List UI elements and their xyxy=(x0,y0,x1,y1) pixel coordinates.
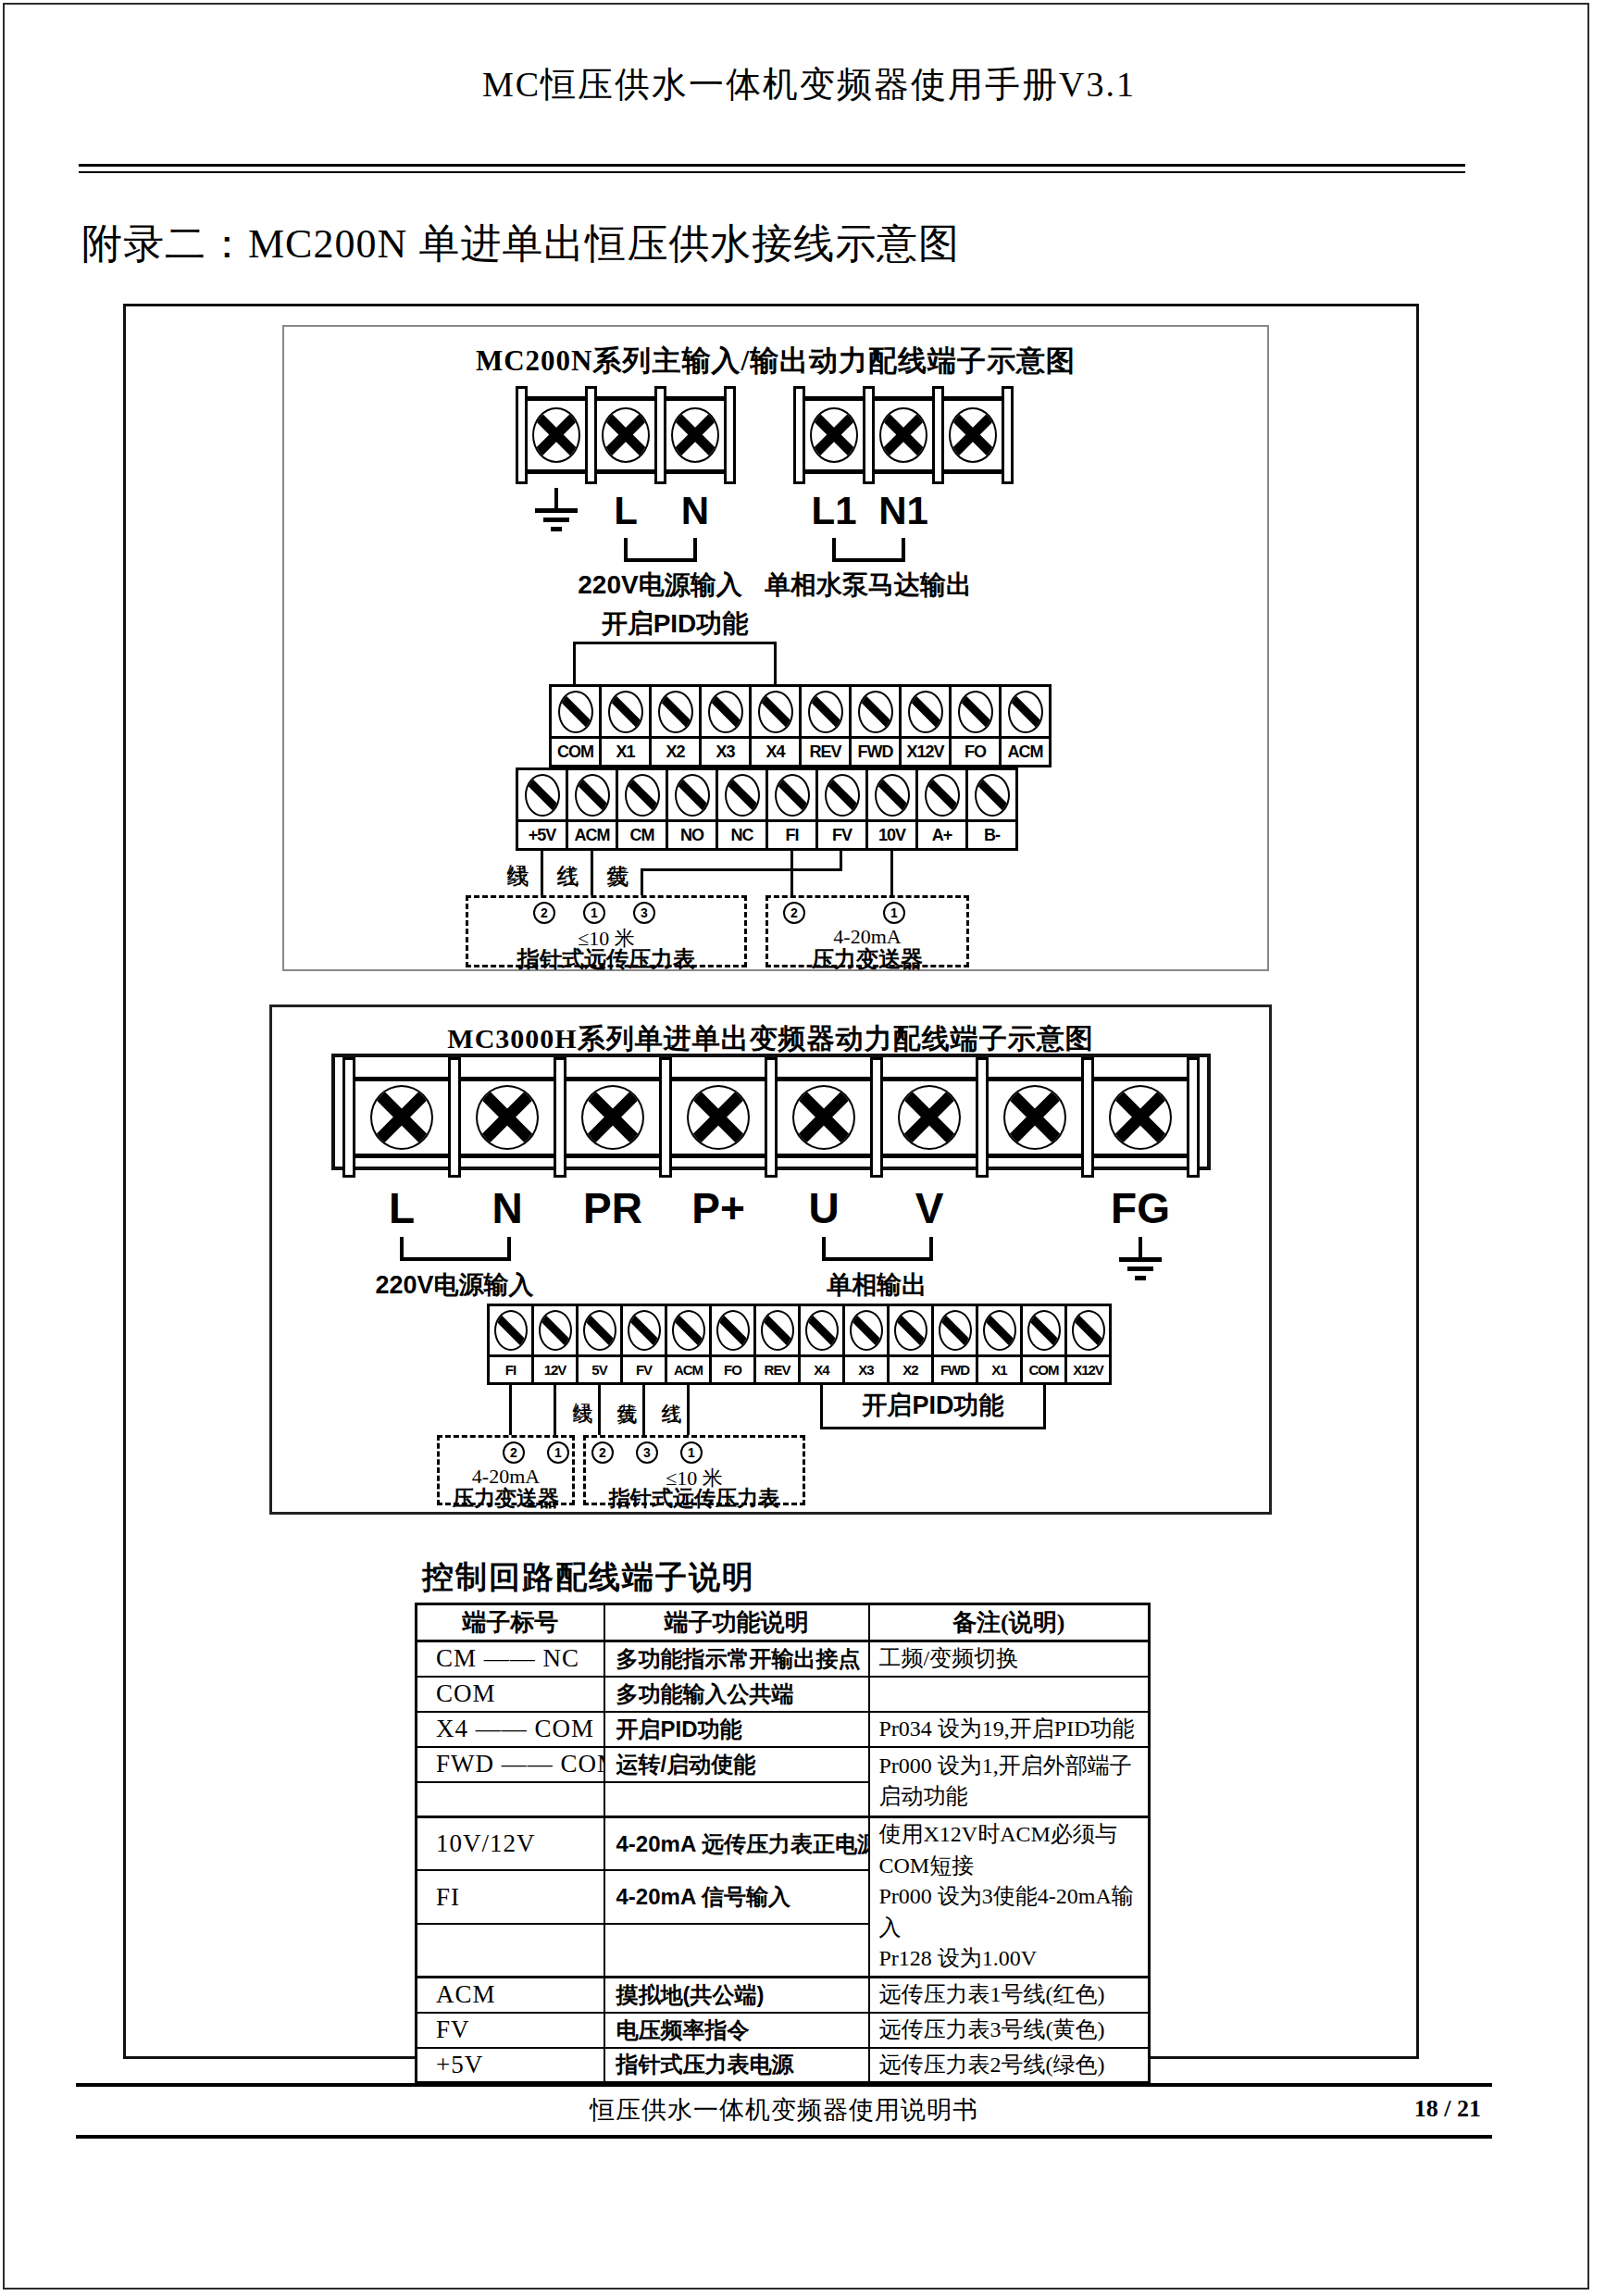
cell-function: 摸拟地(共公端) xyxy=(604,1978,869,2013)
terminal-label: 5V xyxy=(579,1354,620,1382)
screw-slash-icon xyxy=(494,1310,528,1351)
wire-green xyxy=(598,1385,601,1435)
screw-x-icon xyxy=(949,407,997,463)
control-strip-lower: +5V ACM CM NO NC FI FV 10V A+ B- xyxy=(516,767,1018,851)
wire-green xyxy=(541,851,543,895)
table-row: X4 —— COM 开启PID功能 Pr034 设为19,开启PID功能 xyxy=(417,1712,1150,1747)
screw-slash-icon xyxy=(850,1310,883,1351)
power-terminal xyxy=(597,396,654,474)
terminal: +5V xyxy=(516,767,568,851)
terminal-label: FO xyxy=(952,736,999,765)
cell-function: 运转/启动使能 xyxy=(604,1747,869,1782)
power-terminal xyxy=(672,1077,765,1158)
screw-slash-icon xyxy=(958,691,993,733)
screw-slash-icon xyxy=(825,774,860,817)
screw-slash-icon xyxy=(894,1310,927,1351)
screw-x-icon xyxy=(532,407,580,463)
terminal-label-N: N xyxy=(681,492,709,530)
screw-slash-icon xyxy=(908,691,943,733)
screw-slash-icon xyxy=(858,691,893,733)
cell-remark: 远传压力表1号线(红色) xyxy=(869,1978,1150,2013)
table-row: 10V/12V 4-20mA 远传压力表正电源 使用X12V时ACM必须与COM… xyxy=(417,1817,1150,1871)
terminal-label-U: U xyxy=(808,1187,839,1229)
terminal-bar xyxy=(554,1057,566,1178)
table-row: CM —— NC 多功能指示常开输出接点 工频/变频切换 xyxy=(417,1641,1150,1677)
footer-rule-top xyxy=(76,2083,1492,2087)
terminal-label: COM xyxy=(552,736,599,765)
ground-icon xyxy=(535,488,578,531)
terminal-description-table: 端子标号 端子功能说明 备注(说明) CM —— NC 多功能指示常开输出接点 … xyxy=(415,1603,1151,2084)
terminal-label: A+ xyxy=(918,819,965,848)
terminal: A+ xyxy=(915,767,968,851)
table-row: FV 电压频率指令 远传压力表3号线(黄色) xyxy=(417,2013,1150,2048)
cell-function: 开启PID功能 xyxy=(604,1712,869,1747)
col-header-function: 端子功能说明 xyxy=(604,1604,869,1641)
terminal-bar xyxy=(976,1057,989,1178)
manual-page: MC恒压供水一体机变频器使用手册V3.1 附录二：MC200N 单进单出恒压供水… xyxy=(0,0,1618,2296)
terminal-label-L: L xyxy=(389,1187,415,1229)
terminal-label: 10V xyxy=(868,819,915,848)
screw-slash-icon xyxy=(1027,1310,1061,1351)
bracket-output xyxy=(832,538,905,562)
pressure-gauge-box: 2 1 3 ≤10 米 指针式远传压力表 xyxy=(466,895,747,967)
transmitter-name: 压力变送器 xyxy=(768,944,966,974)
terminal-label-L1: L1 xyxy=(811,492,856,530)
terminal: X12V xyxy=(899,684,952,767)
cell-terminal: CM —— NC xyxy=(417,1641,604,1677)
header-rule xyxy=(79,164,1465,173)
cell-function: 指针式压力表电源 xyxy=(604,2048,869,2083)
screw-x-icon xyxy=(1003,1085,1066,1150)
terminal-bar xyxy=(724,386,736,484)
remark-line: Pr000 设为1,开启外部端子 xyxy=(879,1751,1148,1782)
cell-empty xyxy=(417,1782,604,1817)
terminal: B- xyxy=(965,767,1018,851)
screw-x-icon xyxy=(879,407,927,463)
caption-single-phase-output: 单相输出 xyxy=(738,1268,1015,1302)
screw-x-icon xyxy=(602,407,650,463)
power-block-input xyxy=(516,386,736,484)
screw-slash-icon xyxy=(628,1310,661,1351)
terminal-bar xyxy=(1081,1057,1094,1178)
terminal-label: X2 xyxy=(890,1354,931,1382)
power-terminal xyxy=(566,1077,659,1158)
terminal: 10V xyxy=(865,767,918,851)
circled-number: 2 xyxy=(503,1441,525,1464)
terminal-label-PR: PR xyxy=(583,1187,642,1229)
gauge-name: 指针式远传压力表 xyxy=(586,1484,803,1513)
screw-x-icon xyxy=(476,1085,539,1150)
pid-label: 开启PID功能 xyxy=(536,606,814,642)
terminal: X1 xyxy=(599,684,652,767)
terminal-bar xyxy=(1187,1057,1200,1178)
terminal: X2 xyxy=(649,684,702,767)
power-terminal xyxy=(461,1077,554,1158)
cell-remark-merged: 使用X12V时ACM必须与COM短接 Pr000 设为3使能4-20mA输入 P… xyxy=(869,1817,1150,1978)
terminal-label-N1: N1 xyxy=(878,492,928,530)
terminal: X4 xyxy=(798,1304,845,1385)
screw-slash-icon xyxy=(675,774,710,817)
terminal: X1 xyxy=(976,1304,1023,1385)
screw-slash-icon xyxy=(983,1310,1016,1351)
terminal: X4 xyxy=(749,684,802,767)
terminal-label: FI xyxy=(768,819,815,848)
bracket-input xyxy=(624,538,697,562)
screw-slash-icon xyxy=(1072,1310,1105,1351)
footer-text: 恒压供水一体机变频器使用说明书 xyxy=(76,2093,1492,2127)
cell-function: 多功能指示常开输出接点 xyxy=(604,1641,869,1677)
diagram-mc3000h: MC3000H系列单进单出变频器动力配线端子示意图 xyxy=(269,1004,1272,1515)
terminal-bar xyxy=(654,386,666,484)
cell-empty xyxy=(604,1782,869,1817)
circled-number: 1 xyxy=(547,1441,569,1464)
pressure-transmitter-box: 2 1 4-20mA 压力变送器 xyxy=(765,895,969,967)
circled-number: 2 xyxy=(783,902,805,924)
screw-slash-icon xyxy=(625,774,660,817)
cell-remark: 远传压力表2号线(绿色) xyxy=(869,2048,1150,2083)
terminal: COM xyxy=(1020,1304,1067,1385)
screw-slash-icon xyxy=(575,774,610,817)
terminal: CM xyxy=(616,767,668,851)
page-number: 18 / 21 xyxy=(1342,2095,1481,2123)
col-header-remark: 备注(说明) xyxy=(869,1604,1150,1641)
screw-x-icon xyxy=(898,1085,961,1150)
terminal-label-P+: P+ xyxy=(691,1187,745,1229)
power-terminal xyxy=(355,1077,448,1158)
power-terminal xyxy=(944,396,1002,474)
screw-x-icon xyxy=(687,1085,750,1150)
power-terminal xyxy=(805,396,863,474)
terminal-label: FI xyxy=(490,1354,531,1382)
cell-terminal: X4 —— COM xyxy=(417,1712,604,1747)
circled-number: 1 xyxy=(583,902,605,924)
bracket-output xyxy=(822,1237,933,1261)
terminal: ACM xyxy=(566,767,618,851)
wire-red xyxy=(591,851,593,895)
table-header-row: 端子标号 端子功能说明 备注(说明) xyxy=(417,1604,1150,1641)
terminal: FV xyxy=(620,1304,667,1385)
terminal-bar xyxy=(448,1057,461,1178)
terminal: X2 xyxy=(887,1304,934,1385)
footer-rule-bottom xyxy=(76,2135,1492,2139)
header-title: MC恒压供水一体机变频器使用手册V3.1 xyxy=(0,61,1618,108)
power-terminal xyxy=(666,396,724,474)
screw-slash-icon xyxy=(758,691,793,733)
gauge-name: 指针式远传压力表 xyxy=(468,944,744,974)
pid-bracket xyxy=(573,642,777,684)
terminal-label: FWD xyxy=(852,736,899,765)
terminal-bar xyxy=(932,386,944,484)
table-row: COM 多功能输入公共端 xyxy=(417,1677,1150,1712)
remark-line: 启动功能 xyxy=(879,1781,1148,1813)
terminal-bar xyxy=(342,1057,355,1178)
terminal: NC xyxy=(716,767,768,851)
caption-motor-output: 单相水泵马达输出 xyxy=(729,568,1007,603)
terminal: FI xyxy=(487,1304,534,1385)
terminal-label-N: N xyxy=(492,1187,522,1229)
cell-remark: Pr034 设为19,开启PID功能 xyxy=(869,1712,1150,1747)
cell-terminal: ACM xyxy=(417,1978,604,2013)
terminal-label: ACM xyxy=(667,1354,709,1382)
power-terminal xyxy=(1094,1077,1187,1158)
table-title: 控制回路配线端子说明 xyxy=(422,1556,755,1599)
screw-slash-icon xyxy=(805,1310,839,1351)
screw-slash-icon xyxy=(925,774,960,817)
screw-slash-icon xyxy=(975,774,1010,817)
terminal-label: X1 xyxy=(978,1354,1020,1382)
remark-line: Pr000 设为3使能4-20mA输入 xyxy=(879,1881,1148,1943)
pid-label: 开启PID功能 xyxy=(820,1389,1046,1422)
wire-red xyxy=(687,1385,690,1435)
pressure-transmitter-box: 2 1 4-20mA 压力变送器 xyxy=(437,1435,575,1505)
terminal-label: X12V xyxy=(902,736,949,765)
terminal-label: REV xyxy=(802,736,849,765)
cell-function: 4-20mA 信号输入 xyxy=(604,1870,869,1924)
remark-line: 使用X12V时ACM必须与COM短接 xyxy=(879,1819,1148,1881)
power-terminal xyxy=(875,396,932,474)
pressure-gauge-box: 2 3 1 ≤10 米 指针式远传压力表 xyxy=(583,1435,805,1505)
cell-remark: 远传压力表3号线(黄色) xyxy=(869,2013,1150,2048)
screw-slash-icon xyxy=(672,1310,705,1351)
terminal: X12V xyxy=(1064,1304,1112,1385)
terminal-label: X4 xyxy=(752,736,799,765)
cell-terminal: +5V xyxy=(417,2048,604,2083)
section-title: 附录二：MC200N 单进单出恒压供水接线示意图 xyxy=(81,217,960,271)
screw-slash-icon xyxy=(608,691,643,733)
cell-remark-merged: Pr000 设为1,开启外部端子 启动功能 xyxy=(869,1747,1150,1817)
cell-terminal: FV xyxy=(417,2013,604,2048)
screw-slash-icon xyxy=(708,691,743,733)
power-block xyxy=(342,1057,1200,1178)
bracket-input xyxy=(400,1237,511,1261)
wire-yellow xyxy=(642,1385,645,1435)
terminal-label: CM xyxy=(618,819,666,848)
diagram2-title: MC3000H系列单进单出变频器动力配线端子示意图 xyxy=(272,1020,1269,1058)
circled-number: 1 xyxy=(883,902,905,924)
circled-number: 3 xyxy=(636,1441,658,1464)
cell-terminal: FI xyxy=(417,1870,604,1924)
circled-number: 1 xyxy=(680,1441,703,1464)
terminal-label: NC xyxy=(718,819,765,848)
terminal-label: REV xyxy=(756,1354,798,1382)
terminal-label: FV xyxy=(818,819,865,848)
wire-yellow xyxy=(641,868,643,895)
cell-function: 电压频率指令 xyxy=(604,2013,869,2048)
table-row: +5V 指针式压力表电源 远传压力表2号线(绿色) xyxy=(417,2048,1150,2083)
remark-line: Pr128 设为1.00V xyxy=(879,1943,1148,1975)
control-strip-upper: COM X1 X2 X3 X4 REV FWD X12V FO ACM xyxy=(549,684,1052,767)
terminal: X3 xyxy=(842,1304,890,1385)
screw-slash-icon xyxy=(1008,691,1043,733)
terminal: 12V xyxy=(531,1304,579,1385)
screw-slash-icon xyxy=(558,691,593,733)
cell-terminal: COM xyxy=(417,1677,604,1712)
terminal: ACM xyxy=(999,684,1052,767)
circled-number: 2 xyxy=(591,1441,614,1464)
screw-slash-icon xyxy=(525,774,560,817)
terminal: FWD xyxy=(931,1304,978,1385)
terminal: REV xyxy=(799,684,852,767)
terminal-label-L: L xyxy=(614,492,638,530)
table-row: ACM 摸拟地(共公端) 远传压力表1号线(红色) xyxy=(417,1978,1150,2013)
screw-slash-icon xyxy=(716,1310,750,1351)
screw-x-icon xyxy=(1109,1085,1172,1150)
col-header-terminal: 端子标号 xyxy=(417,1604,604,1641)
terminal: FWD xyxy=(849,684,902,767)
screw-slash-icon xyxy=(875,774,910,817)
appendix-frame: MC200N系列主输入/输出动力配线端子示意图 xyxy=(123,304,1419,2059)
cell-terminal: 10V/12V xyxy=(417,1817,604,1871)
terminal-label: X1 xyxy=(602,736,649,765)
power-terminal xyxy=(989,1077,1081,1158)
screw-slash-icon xyxy=(808,691,843,733)
terminal-label: FV xyxy=(623,1354,665,1382)
screw-slash-icon xyxy=(539,1310,572,1351)
terminal-bar xyxy=(870,1057,883,1178)
screw-x-icon xyxy=(810,407,858,463)
terminal-label-FG: FG xyxy=(1111,1187,1170,1229)
wire-signal xyxy=(790,851,793,895)
power-block-output xyxy=(793,386,1014,484)
terminal-label: B- xyxy=(968,819,1015,848)
screw-x-icon xyxy=(792,1085,855,1150)
terminal-label: X2 xyxy=(652,736,699,765)
caption-power-input: 220V电源输入 xyxy=(316,1268,593,1302)
terminal-label: FO xyxy=(712,1354,753,1382)
diagram-mc200n: MC200N系列主输入/输出动力配线端子示意图 xyxy=(282,325,1269,971)
terminal-bar xyxy=(659,1057,672,1178)
terminal: NO xyxy=(666,767,718,851)
terminal-label: 12V xyxy=(534,1354,576,1382)
terminal-bar xyxy=(516,386,528,484)
terminal-label: X4 xyxy=(801,1354,842,1382)
control-strip: FI 12V 5V FV ACM FO REV X4 X3 X2 FWD X1 … xyxy=(487,1304,1112,1385)
terminal-label: ACM xyxy=(568,819,616,848)
terminal: REV xyxy=(753,1304,801,1385)
terminal-bar xyxy=(793,386,805,484)
terminal-label: FWD xyxy=(934,1354,976,1382)
terminal: FV xyxy=(815,767,868,851)
diagram1-title: MC200N系列主输入/输出动力配线端子示意图 xyxy=(284,342,1267,381)
cell-terminal: FWD —— COM xyxy=(417,1747,604,1782)
terminal-bar xyxy=(585,386,597,484)
ground-icon xyxy=(1119,1237,1162,1280)
terminal-label: ACM xyxy=(1002,736,1049,765)
screw-x-icon xyxy=(370,1085,433,1150)
circled-number: 3 xyxy=(633,902,655,924)
screw-slash-icon xyxy=(761,1310,794,1351)
terminal-bar xyxy=(1002,386,1014,484)
wire-signal xyxy=(509,1385,512,1435)
cell-function: 4-20mA 远传压力表正电源 xyxy=(604,1817,869,1871)
cell-remark xyxy=(869,1677,1150,1712)
terminal-label: COM xyxy=(1023,1354,1064,1382)
terminal-bar xyxy=(765,1057,778,1178)
terminal-label: X3 xyxy=(845,1354,887,1382)
terminal-label: +5V xyxy=(518,819,566,848)
terminal-label: NO xyxy=(668,819,716,848)
cell-empty xyxy=(604,1924,869,1978)
cell-empty xyxy=(417,1924,604,1978)
transmitter-name: 压力变送器 xyxy=(440,1484,572,1513)
terminal: FO xyxy=(709,1304,756,1385)
wire-supply xyxy=(554,1385,556,1435)
screw-slash-icon xyxy=(583,1310,616,1351)
terminal: FI xyxy=(765,767,818,851)
wire-yellow xyxy=(641,868,842,871)
table-row: FWD —— COM 运转/启动使能 Pr000 设为1,开启外部端子 启动功能 xyxy=(417,1747,1150,1782)
screw-x-icon xyxy=(581,1085,644,1150)
terminal: ACM xyxy=(665,1304,712,1385)
screw-slash-icon xyxy=(658,691,693,733)
screw-slash-icon xyxy=(725,774,760,817)
cell-function: 多功能输入公共端 xyxy=(604,1677,869,1712)
cell-remark: 工频/变频切换 xyxy=(869,1641,1150,1677)
terminal-label: X12V xyxy=(1067,1354,1109,1382)
terminal: FO xyxy=(949,684,1002,767)
screw-slash-icon xyxy=(775,774,810,817)
power-terminal xyxy=(528,396,585,474)
terminal-label-V: V xyxy=(915,1187,944,1229)
power-terminal xyxy=(778,1077,870,1158)
screw-slash-icon xyxy=(939,1310,972,1351)
power-terminal xyxy=(883,1077,976,1158)
terminal: 5V xyxy=(576,1304,623,1385)
terminal: COM xyxy=(549,684,602,767)
terminal: X3 xyxy=(699,684,752,767)
circled-number: 2 xyxy=(533,902,555,924)
wire-supply xyxy=(890,851,893,895)
terminal-bar xyxy=(863,386,875,484)
terminal-label: X3 xyxy=(702,736,749,765)
screw-x-icon xyxy=(671,407,719,463)
